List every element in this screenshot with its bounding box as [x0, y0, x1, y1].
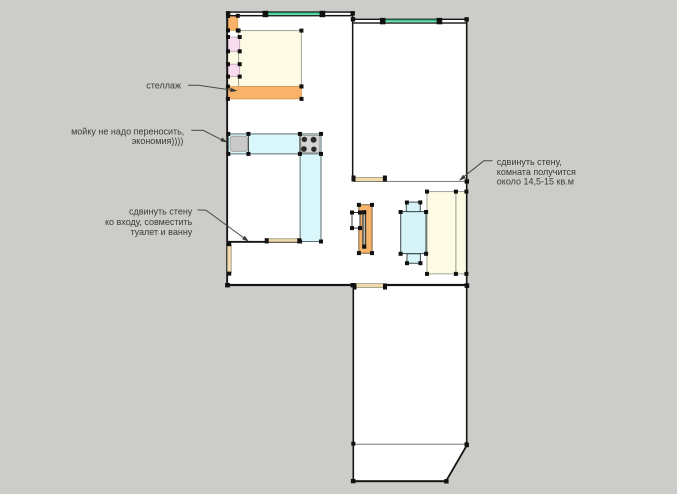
svg-text:мойку не надо переносить,: мойку не надо переносить, — [71, 126, 184, 136]
svg-text:сдвинуть стену: сдвинуть стену — [129, 207, 193, 217]
svg-text:сдвинуть стену,: сдвинуть стену, — [497, 157, 562, 167]
svg-text:ко входу, совместить: ко входу, совместить — [105, 217, 193, 227]
svg-text:комната получится: комната получится — [497, 167, 576, 177]
svg-text:экономия)))): экономия)))) — [132, 136, 184, 146]
svg-text:около 14,5-15 кв.м: около 14,5-15 кв.м — [497, 177, 574, 187]
svg-text:туалет и ванну: туалет и ванну — [130, 227, 192, 237]
svg-text:стеллаж: стеллаж — [146, 81, 181, 91]
